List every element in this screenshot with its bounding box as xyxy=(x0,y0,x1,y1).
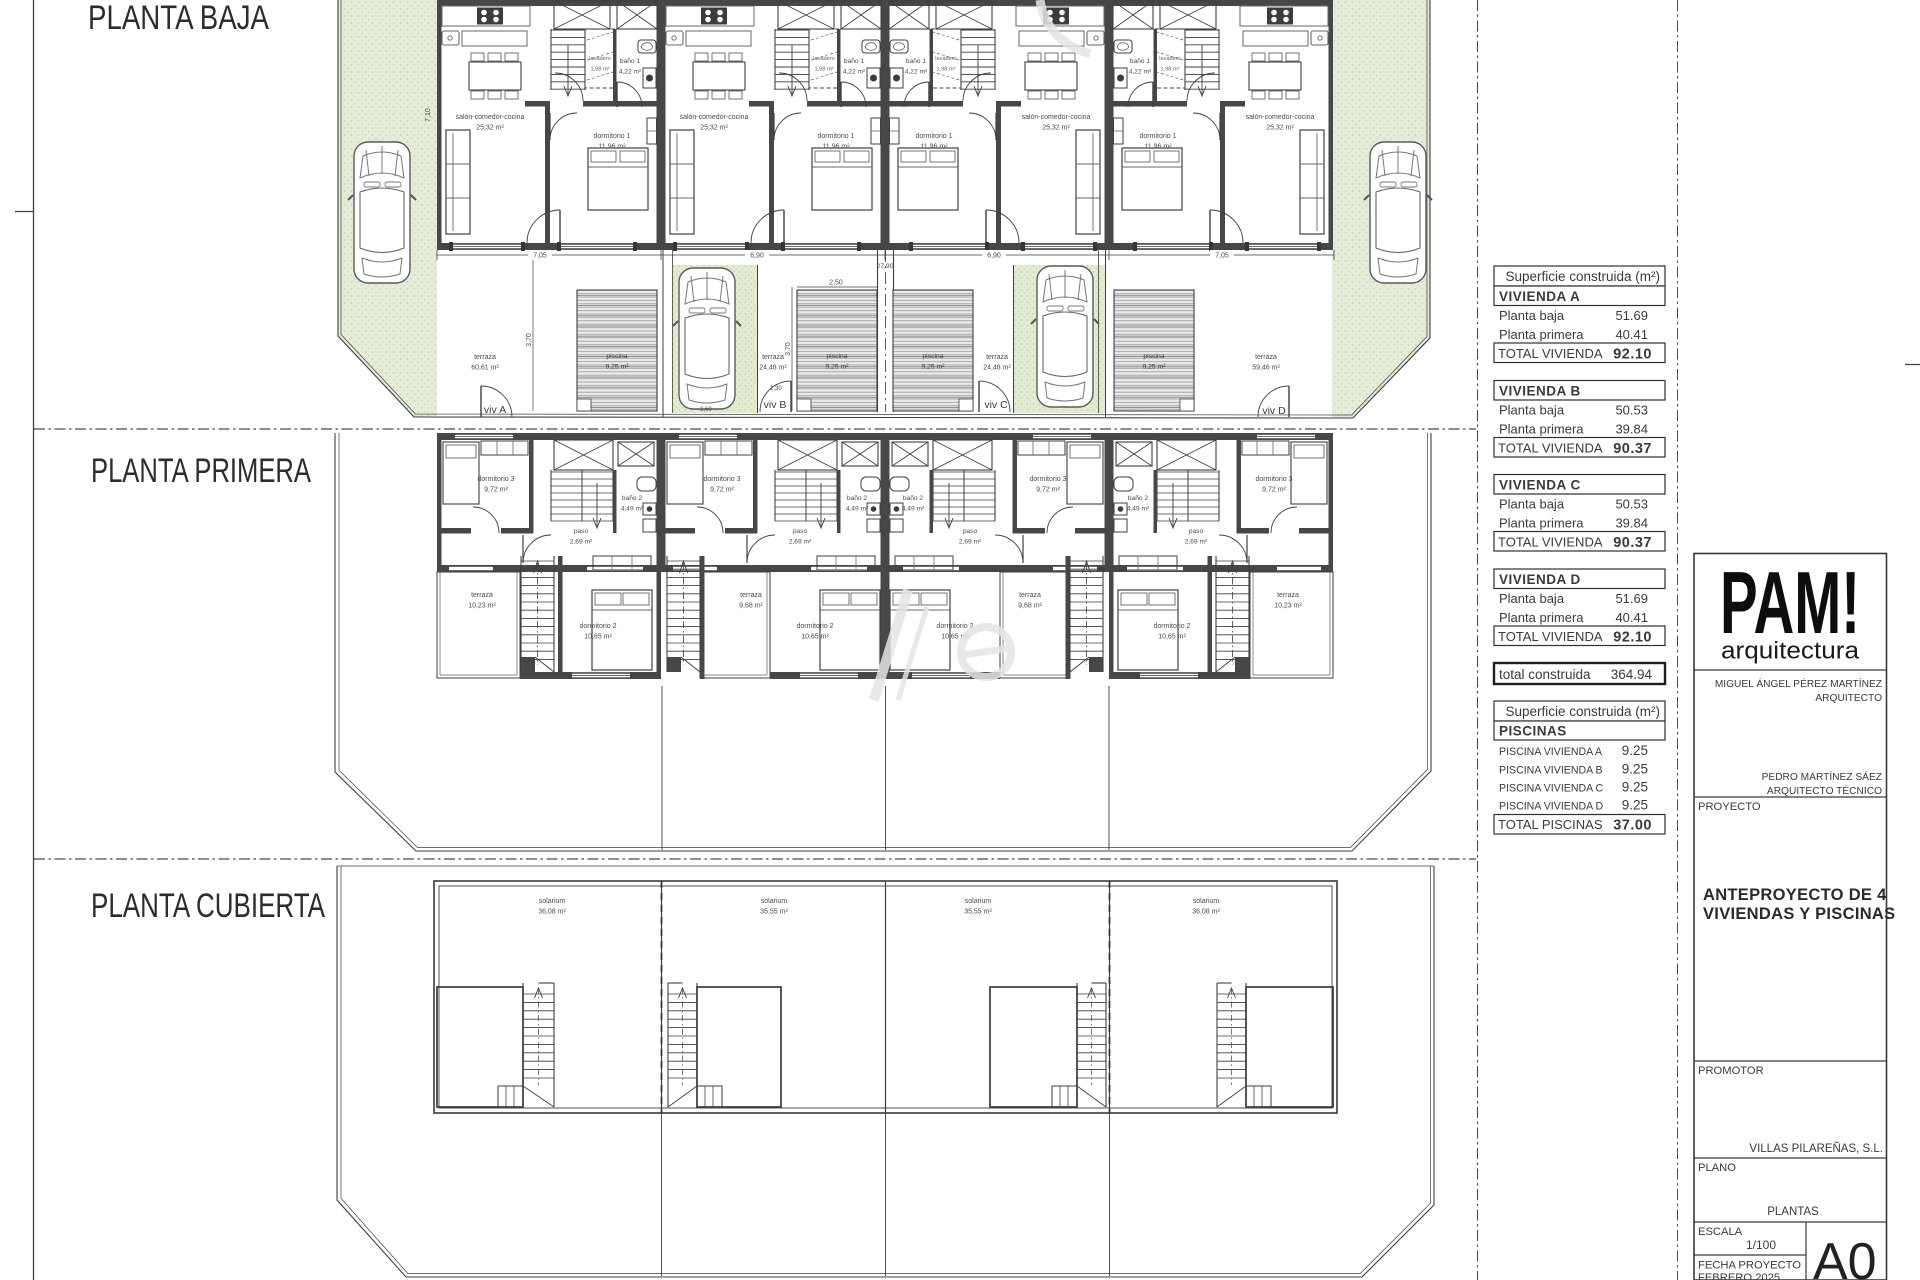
svg-text:24,48 m²: 24,48 m² xyxy=(759,365,787,372)
svg-text:2,50: 2,50 xyxy=(829,280,843,287)
svg-text:2,69 m²: 2,69 m² xyxy=(570,539,593,546)
svg-text:92.10: 92.10 xyxy=(1613,630,1652,646)
svg-text:PLANTA PRIMERA: PLANTA PRIMERA xyxy=(91,452,311,490)
svg-text:PLANTAS: PLANTAS xyxy=(1767,1206,1819,1218)
svg-text:viv C: viv C xyxy=(984,399,1008,411)
svg-text:terraza: terraza xyxy=(1255,354,1277,361)
svg-text:baño 2: baño 2 xyxy=(622,495,643,502)
svg-text:60,61 m²: 60,61 m² xyxy=(471,365,499,372)
svg-text:dormitorio 3: dormitorio 3 xyxy=(1030,476,1067,483)
svg-text:50.53: 50.53 xyxy=(1615,403,1648,418)
svg-text:40.41: 40.41 xyxy=(1615,610,1648,625)
svg-text:ANTEPROYECTO DE 4: ANTEPROYECTO DE 4 xyxy=(1703,886,1887,904)
svg-text:9,25 m²: 9,25 m² xyxy=(921,364,945,371)
svg-text:11,96 m²: 11,96 m² xyxy=(822,144,850,151)
svg-text:1,98 m²: 1,98 m² xyxy=(1161,67,1180,73)
svg-text:dormitorio 1: dormitorio 1 xyxy=(1140,133,1177,140)
svg-text:9,72 m²: 9,72 m² xyxy=(1262,487,1286,494)
svg-text:Superficie construida (m²): Superficie construida (m²) xyxy=(1505,704,1660,719)
svg-text:25,32 m²: 25,32 m² xyxy=(476,125,504,132)
svg-text:11,96 m²: 11,96 m² xyxy=(1144,144,1172,151)
svg-text:25,32 m²: 25,32 m² xyxy=(1042,125,1070,132)
svg-text:baño 1: baño 1 xyxy=(844,58,865,65)
svg-text:4,22 m²: 4,22 m² xyxy=(1129,69,1152,76)
svg-text:10,65 m²: 10,65 m² xyxy=(584,634,612,641)
svg-text:1,98 m²: 1,98 m² xyxy=(815,67,834,73)
svg-text:10,23 m²: 10,23 m² xyxy=(468,603,496,610)
svg-text:salón-comedor-cocina: salón-comedor-cocina xyxy=(1022,114,1091,121)
svg-text:Planta primera: Planta primera xyxy=(1499,516,1584,531)
svg-text:4,22 m²: 4,22 m² xyxy=(619,69,642,76)
svg-text:Planta primera: Planta primera xyxy=(1499,327,1584,342)
svg-text:solarium: solarium xyxy=(539,898,566,905)
svg-text:dormitorio 2: dormitorio 2 xyxy=(580,623,617,630)
svg-text:salón-comedor-cocina: salón-comedor-cocina xyxy=(1246,114,1315,121)
svg-text:3,70: 3,70 xyxy=(785,342,792,356)
svg-text:lavadero: lavadero xyxy=(813,56,834,62)
svg-text:VIVIENDA D: VIVIENDA D xyxy=(1499,572,1581,587)
svg-text:4,49 m²: 4,49 m² xyxy=(846,506,869,513)
svg-text:9,72 m²: 9,72 m² xyxy=(484,487,508,494)
svg-text:baño 1: baño 1 xyxy=(1130,58,1151,65)
svg-text:terraza: terraza xyxy=(986,354,1008,361)
svg-text:37.00: 37.00 xyxy=(1613,818,1652,834)
svg-text:4,49 m²: 4,49 m² xyxy=(621,506,644,513)
svg-text:Planta baja: Planta baja xyxy=(1499,591,1565,606)
svg-text:TOTAL PISCINAS: TOTAL PISCINAS xyxy=(1498,817,1603,832)
svg-text:PROMOTOR: PROMOTOR xyxy=(1698,1065,1764,1077)
svg-text:9,72 m²: 9,72 m² xyxy=(710,487,734,494)
svg-text:10,65 m²: 10,65 m² xyxy=(801,634,829,641)
svg-text:Planta primera: Planta primera xyxy=(1499,422,1584,437)
svg-text:dormitorio 2: dormitorio 2 xyxy=(937,623,974,630)
svg-text:2,60: 2,60 xyxy=(700,407,712,413)
svg-text:6,90: 6,90 xyxy=(987,253,1001,260)
svg-text:VIVIENDAS Y PISCINAS: VIVIENDAS Y PISCINAS xyxy=(1703,905,1895,923)
svg-text:1,98 m²: 1,98 m² xyxy=(591,67,610,73)
svg-text:51.69: 51.69 xyxy=(1615,591,1648,606)
svg-text:364.94: 364.94 xyxy=(1611,667,1653,682)
svg-text:solarium: solarium xyxy=(761,898,788,905)
svg-text:39.84: 39.84 xyxy=(1615,516,1648,531)
svg-text:2,69 m²: 2,69 m² xyxy=(789,539,812,546)
svg-text:dormitorio 1: dormitorio 1 xyxy=(916,133,953,140)
svg-text:9,72 m²: 9,72 m² xyxy=(1036,487,1060,494)
svg-text:10,65 m²: 10,65 m² xyxy=(1158,634,1186,641)
svg-text:7,05: 7,05 xyxy=(1215,253,1229,260)
svg-text:piscina: piscina xyxy=(826,353,847,360)
svg-text:baño 2: baño 2 xyxy=(847,495,868,502)
svg-text:92.10: 92.10 xyxy=(1613,347,1652,363)
svg-text:lavadero: lavadero xyxy=(589,56,610,62)
svg-text:terraza: terraza xyxy=(474,354,496,361)
svg-text:PROYECTO: PROYECTO xyxy=(1698,801,1761,813)
svg-text:viv A: viv A xyxy=(484,404,506,416)
svg-text:piscina: piscina xyxy=(922,353,943,360)
svg-text:36,08 m²: 36,08 m² xyxy=(538,909,566,916)
svg-text:PLANTA BAJA: PLANTA BAJA xyxy=(88,0,269,37)
svg-text:terraza: terraza xyxy=(762,354,784,361)
svg-text:7,05: 7,05 xyxy=(533,253,547,260)
svg-text:35,55 m²: 35,55 m² xyxy=(760,909,788,916)
svg-text:terraza: terraza xyxy=(1277,592,1299,599)
svg-text:terraza: terraza xyxy=(740,592,762,599)
svg-text:dormitorio 3: dormitorio 3 xyxy=(704,476,741,483)
svg-text:4,49 m²: 4,49 m² xyxy=(902,506,925,513)
svg-text:salón-comedor-cocina: salón-comedor-cocina xyxy=(456,114,525,121)
svg-text:1,98 m²: 1,98 m² xyxy=(937,67,956,73)
svg-text:39.84: 39.84 xyxy=(1615,422,1648,437)
svg-text:7,10: 7,10 xyxy=(425,108,432,122)
svg-text:PISCINAS: PISCINAS xyxy=(1499,724,1567,739)
svg-text:11,96 m²: 11,96 m² xyxy=(920,144,948,151)
svg-text:Planta baja: Planta baja xyxy=(1499,497,1565,512)
svg-text:PISCINA VIVIENDA D: PISCINA VIVIENDA D xyxy=(1499,801,1604,813)
svg-text:Planta primera: Planta primera xyxy=(1499,610,1584,625)
svg-text:25,32 m²: 25,32 m² xyxy=(1266,125,1294,132)
svg-text:25,32 m²: 25,32 m² xyxy=(700,125,728,132)
svg-text:24,48 m²: 24,48 m² xyxy=(983,365,1011,372)
svg-text:TOTAL VIVIENDA: TOTAL VIVIENDA xyxy=(1498,629,1603,644)
svg-text:59,46 m²: 59,46 m² xyxy=(1252,365,1280,372)
svg-text:piscina: piscina xyxy=(606,353,627,360)
svg-text:VIVIENDA A: VIVIENDA A xyxy=(1499,289,1580,304)
svg-text:4,49 m²: 4,49 m² xyxy=(1127,506,1150,513)
svg-text:dormitorio 2: dormitorio 2 xyxy=(1154,623,1191,630)
svg-text:2,69 m²: 2,69 m² xyxy=(959,539,982,546)
svg-text:PISCINA VIVIENDA A: PISCINA VIVIENDA A xyxy=(1499,746,1603,758)
svg-text:9,25 m²: 9,25 m² xyxy=(605,364,629,371)
svg-text:baño 2: baño 2 xyxy=(1128,495,1149,502)
svg-text:piscina: piscina xyxy=(1143,353,1164,360)
svg-text:9,25 m²: 9,25 m² xyxy=(825,364,849,371)
svg-text:PISCINA VIVIENDA C: PISCINA VIVIENDA C xyxy=(1499,783,1604,795)
svg-text:9.25: 9.25 xyxy=(1622,743,1648,758)
svg-text:lavadero: lavadero xyxy=(1159,56,1180,62)
svg-text:salón-comedor-cocina: salón-comedor-cocina xyxy=(680,114,749,121)
svg-text:ARQUITECTO TÉCNICO: ARQUITECTO TÉCNICO xyxy=(1767,784,1882,797)
svg-text:9.25: 9.25 xyxy=(1622,798,1648,813)
svg-text:FEBRERO 2025: FEBRERO 2025 xyxy=(1698,1272,1780,1280)
svg-text:Superficie construida (m²): Superficie construida (m²) xyxy=(1505,269,1660,284)
svg-text:1/100: 1/100 xyxy=(1746,1238,1776,1252)
svg-text:TOTAL VIVIENDA: TOTAL VIVIENDA xyxy=(1498,535,1603,550)
svg-text:solarium: solarium xyxy=(965,898,992,905)
svg-text:paso: paso xyxy=(963,528,978,535)
svg-text:35,55 m²: 35,55 m² xyxy=(964,909,992,916)
svg-text:9,68 m²: 9,68 m² xyxy=(739,603,763,610)
svg-text:FECHA PROYECTO: FECHA PROYECTO xyxy=(1698,1260,1801,1272)
svg-text:27,90: 27,90 xyxy=(876,263,893,270)
svg-text:terraza: terraza xyxy=(471,592,493,599)
svg-text:9.25: 9.25 xyxy=(1622,780,1648,795)
svg-text:dormitorio 3: dormitorio 3 xyxy=(1256,476,1293,483)
svg-text:A0: A0 xyxy=(1813,1233,1877,1280)
svg-text:viv D: viv D xyxy=(1262,405,1286,417)
svg-text:9,25 m²: 9,25 m² xyxy=(1142,364,1166,371)
svg-text:90.37: 90.37 xyxy=(1613,441,1652,457)
svg-text:total construida: total construida xyxy=(1499,667,1591,682)
svg-text:MIGUEL ÁNGEL PÉREZ MARTÍNEZ: MIGUEL ÁNGEL PÉREZ MARTÍNEZ xyxy=(1715,677,1882,690)
svg-text:solarium: solarium xyxy=(1193,898,1220,905)
svg-text:9,68 m²: 9,68 m² xyxy=(1018,603,1042,610)
svg-text:paso: paso xyxy=(574,528,589,535)
svg-text:1,30: 1,30 xyxy=(770,386,782,392)
svg-text:36,08 m²: 36,08 m² xyxy=(1192,909,1220,916)
svg-text:terraza: terraza xyxy=(1019,592,1041,599)
svg-text:Planta baja: Planta baja xyxy=(1499,308,1565,323)
svg-text:PLANO: PLANO xyxy=(1698,1162,1736,1174)
svg-text:10,23 m²: 10,23 m² xyxy=(1274,603,1302,610)
svg-text:2,69 m²: 2,69 m² xyxy=(1185,539,1208,546)
svg-text:TOTAL VIVIENDA: TOTAL VIVIENDA xyxy=(1498,346,1603,361)
svg-text:dormitorio 2: dormitorio 2 xyxy=(797,623,834,630)
svg-text:dormitorio 1: dormitorio 1 xyxy=(818,133,855,140)
svg-text:dormitorio 1: dormitorio 1 xyxy=(594,133,631,140)
svg-text:viv B: viv B xyxy=(764,399,787,411)
svg-text:paso: paso xyxy=(1189,528,1204,535)
svg-text:51.69: 51.69 xyxy=(1615,308,1648,323)
svg-text:40.41: 40.41 xyxy=(1615,327,1648,342)
svg-text:paso: paso xyxy=(793,528,808,535)
svg-text:ARQUITECTO: ARQUITECTO xyxy=(1815,693,1882,704)
svg-text:VIVIENDA C: VIVIENDA C xyxy=(1499,478,1581,493)
svg-text:3,70: 3,70 xyxy=(526,333,533,347)
svg-text:baño 1: baño 1 xyxy=(620,58,641,65)
svg-text:baño 1: baño 1 xyxy=(906,58,927,65)
svg-text:50.53: 50.53 xyxy=(1615,497,1648,512)
svg-text:11,96 m²: 11,96 m² xyxy=(598,144,626,151)
svg-text:lavadero: lavadero xyxy=(935,56,956,62)
svg-text:6,90: 6,90 xyxy=(750,253,764,260)
svg-text:PLANTA CUBIERTA: PLANTA CUBIERTA xyxy=(91,887,325,925)
svg-text:4,22 m²: 4,22 m² xyxy=(843,69,866,76)
svg-text:PEDRO MARTÍNEZ SÁEZ: PEDRO MARTÍNEZ SÁEZ xyxy=(1762,770,1882,783)
svg-text:Planta baja: Planta baja xyxy=(1499,403,1565,418)
svg-text:VILLAS PILAREÑAS, S.L.: VILLAS PILAREÑAS, S.L. xyxy=(1749,1142,1883,1155)
svg-text:baño 2: baño 2 xyxy=(903,495,924,502)
svg-text:4,22 m²: 4,22 m² xyxy=(905,69,928,76)
svg-text:TOTAL VIVIENDA: TOTAL VIVIENDA xyxy=(1498,441,1603,456)
svg-text:dormitorio 3: dormitorio 3 xyxy=(478,476,515,483)
svg-text:VIVIENDA B: VIVIENDA B xyxy=(1499,384,1581,399)
svg-text:ESCALA: ESCALA xyxy=(1698,1226,1743,1238)
svg-text:9.25: 9.25 xyxy=(1622,762,1648,777)
svg-text:arquitectura: arquitectura xyxy=(1721,638,1859,665)
svg-text:PISCINA VIVIENDA B: PISCINA VIVIENDA B xyxy=(1499,765,1603,777)
svg-text:90.37: 90.37 xyxy=(1613,535,1652,551)
